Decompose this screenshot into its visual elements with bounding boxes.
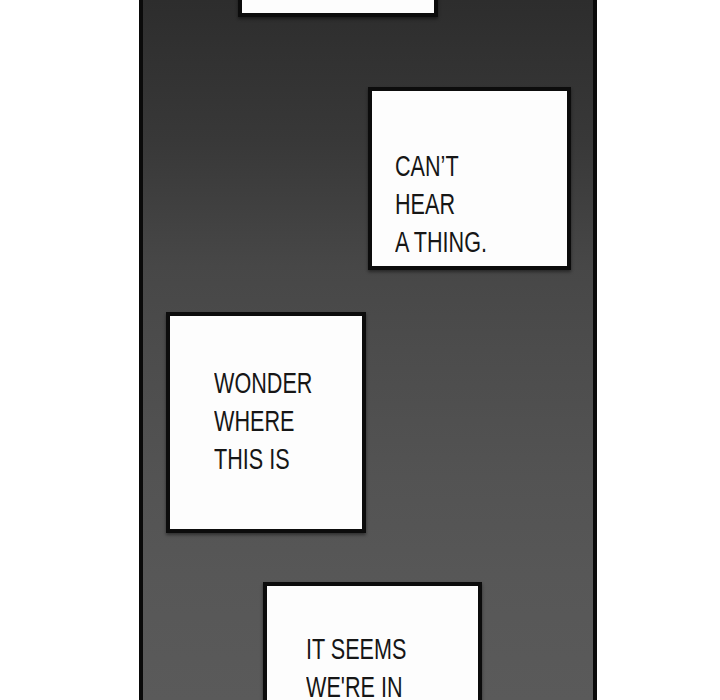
caption-box-cant-hear: CAN’T HEAR A THING. [368,87,571,270]
caption-text-cant-hear: CAN’T HEAR A THING. [395,147,519,261]
caption-text-wonder-where: WONDER WHERE THIS IS [214,364,312,478]
caption-text-it-seems: IT SEEMS WE'RE IN [306,630,406,700]
caption-box-top-partial [238,0,438,17]
caption-box-it-seems: IT SEEMS WE'RE IN [263,582,482,700]
caption-box-wonder-where: WONDER WHERE THIS IS [166,312,366,533]
